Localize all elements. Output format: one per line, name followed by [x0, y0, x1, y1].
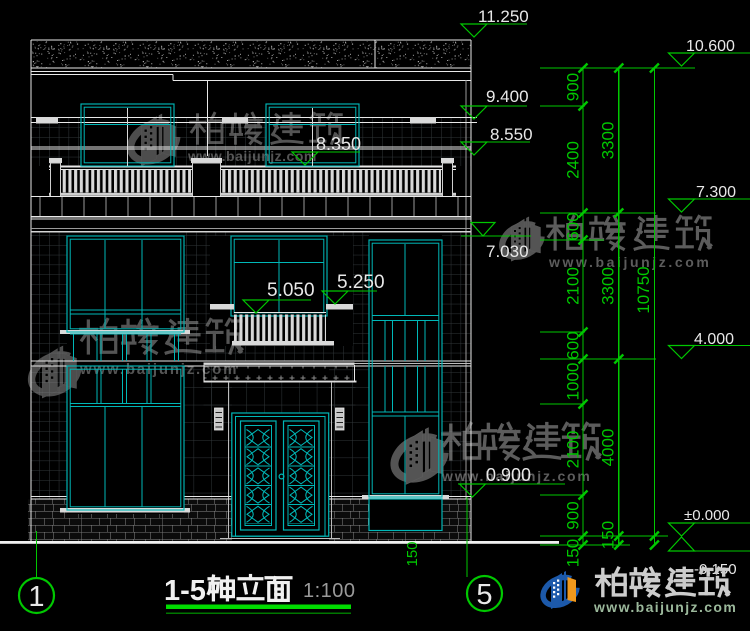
svg-text:2400: 2400: [564, 141, 583, 179]
svg-text:150: 150: [564, 539, 583, 567]
svg-text:1:100: 1:100: [303, 580, 356, 602]
svg-text:900: 900: [564, 501, 583, 529]
svg-text:2100: 2100: [564, 267, 583, 305]
svg-text:7.300: 7.300: [696, 184, 736, 201]
svg-text:1: 1: [28, 581, 44, 613]
svg-text:7.030: 7.030: [486, 242, 529, 261]
svg-text:150: 150: [598, 521, 617, 549]
svg-text:900: 900: [564, 73, 583, 101]
svg-text:4.000: 4.000: [694, 331, 734, 348]
svg-text:10750: 10750: [634, 266, 653, 313]
svg-text:10.600: 10.600: [686, 38, 735, 55]
svg-text:±0.000: ±0.000: [684, 507, 730, 524]
svg-text:600: 600: [564, 331, 583, 359]
svg-text:www.baijunjz.com: www.baijunjz.com: [593, 599, 737, 615]
svg-text:9.400: 9.400: [486, 87, 529, 106]
svg-text:1-5: 1-5: [164, 575, 206, 607]
svg-text:11.250: 11.250: [478, 7, 529, 26]
svg-text:4000: 4000: [598, 429, 617, 467]
svg-text:5.250: 5.250: [337, 272, 385, 293]
svg-text:600: 600: [564, 212, 583, 240]
svg-text:1000: 1000: [564, 363, 583, 401]
svg-text:8.350: 8.350: [316, 134, 361, 154]
svg-text:150: 150: [404, 541, 421, 566]
svg-text:5: 5: [476, 579, 492, 611]
svg-text:2100: 2100: [564, 431, 583, 469]
svg-text:0.900: 0.900: [486, 465, 531, 485]
svg-text:5.050: 5.050: [267, 280, 315, 301]
svg-text:-0.150: -0.150: [694, 561, 737, 578]
svg-text:3300: 3300: [598, 122, 617, 160]
svg-text:8.550: 8.550: [490, 125, 533, 144]
svg-text:3300: 3300: [598, 267, 617, 305]
